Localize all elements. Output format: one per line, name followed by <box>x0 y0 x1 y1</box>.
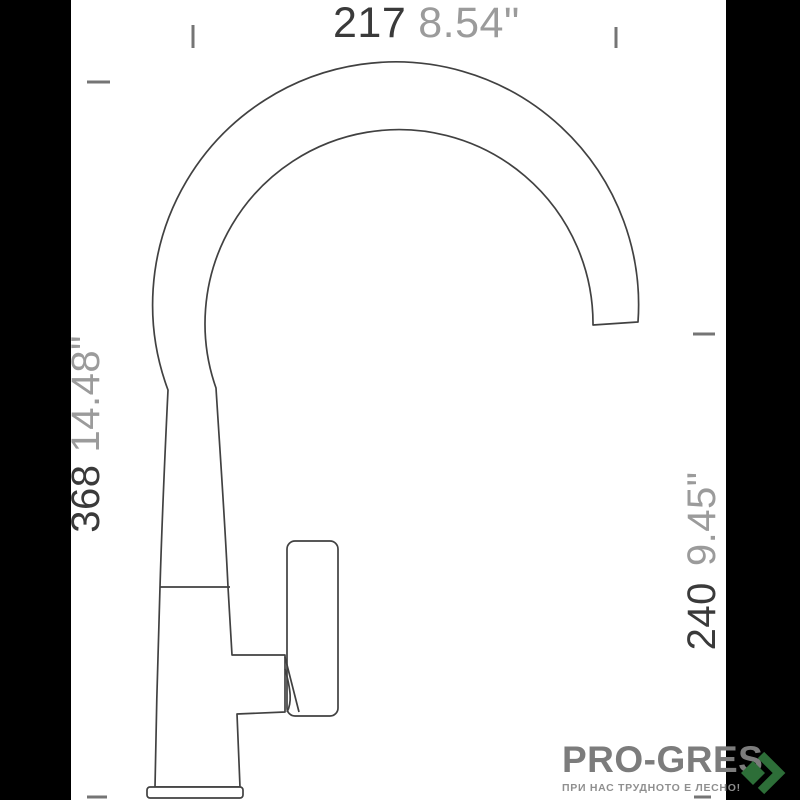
spout-mm-value: 240 <box>680 582 724 650</box>
faucet-handle-lever <box>287 541 338 716</box>
dimension-label-height: 36814.48" <box>66 335 106 533</box>
height-mm-value: 368 <box>64 465 108 533</box>
dimension-label-spout-height: 2409.45" <box>682 472 722 651</box>
spout-inch-value: 9.45" <box>680 472 724 567</box>
brand-diamond-arrow-icon <box>733 746 795 800</box>
technical-drawing-page: 2178.54" 36814.48" 2409.45" PRO-GRES ПРИ… <box>0 0 800 800</box>
faucet-base-plate <box>147 787 243 798</box>
faucet-body-spout-outline <box>153 62 639 787</box>
faucet-outline-group <box>147 62 639 798</box>
width-inch-value: 8.54" <box>418 0 519 47</box>
dimension-label-width: 2178.54" <box>333 2 520 45</box>
height-inch-value: 14.48" <box>64 335 108 452</box>
faucet-line-drawing <box>0 0 800 800</box>
brand-diamond-shape <box>741 761 765 785</box>
width-mm-value: 217 <box>333 0 406 47</box>
